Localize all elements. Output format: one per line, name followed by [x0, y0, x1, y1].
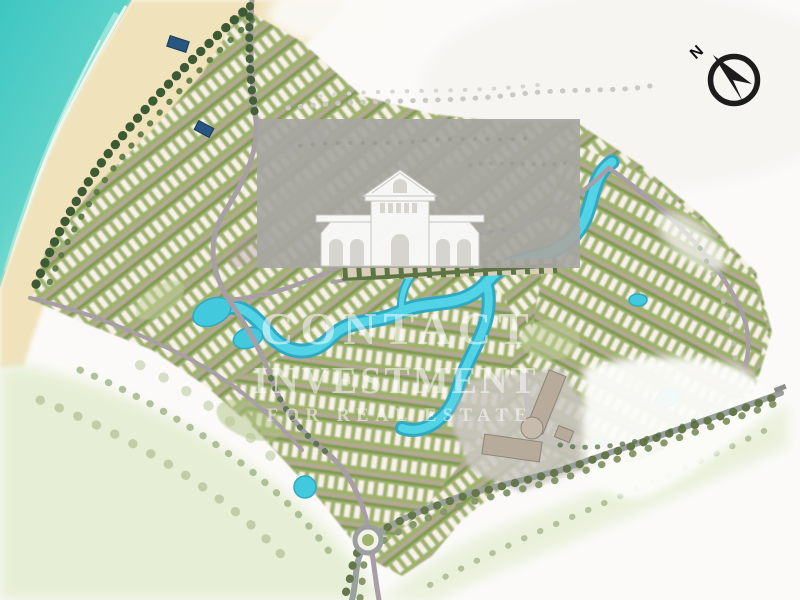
pond-east-small	[629, 294, 647, 306]
masterplan-screenshot: CONTACT INVESTMENT FOR REAL ESTATE N	[0, 0, 800, 600]
masterplan-map: CONTACT INVESTMENT FOR REAL ESTATE N	[0, 0, 800, 600]
watermark-line-1: CONTACT	[260, 303, 536, 354]
watermark-line-3: FOR REAL ESTATE	[267, 406, 533, 426]
watermark-line-2: INVESTMENT	[253, 360, 539, 402]
pond-south	[294, 476, 316, 498]
roundabout-island	[362, 534, 374, 546]
watermark-text: CONTACT INVESTMENT FOR REAL ESTATE	[253, 303, 539, 426]
